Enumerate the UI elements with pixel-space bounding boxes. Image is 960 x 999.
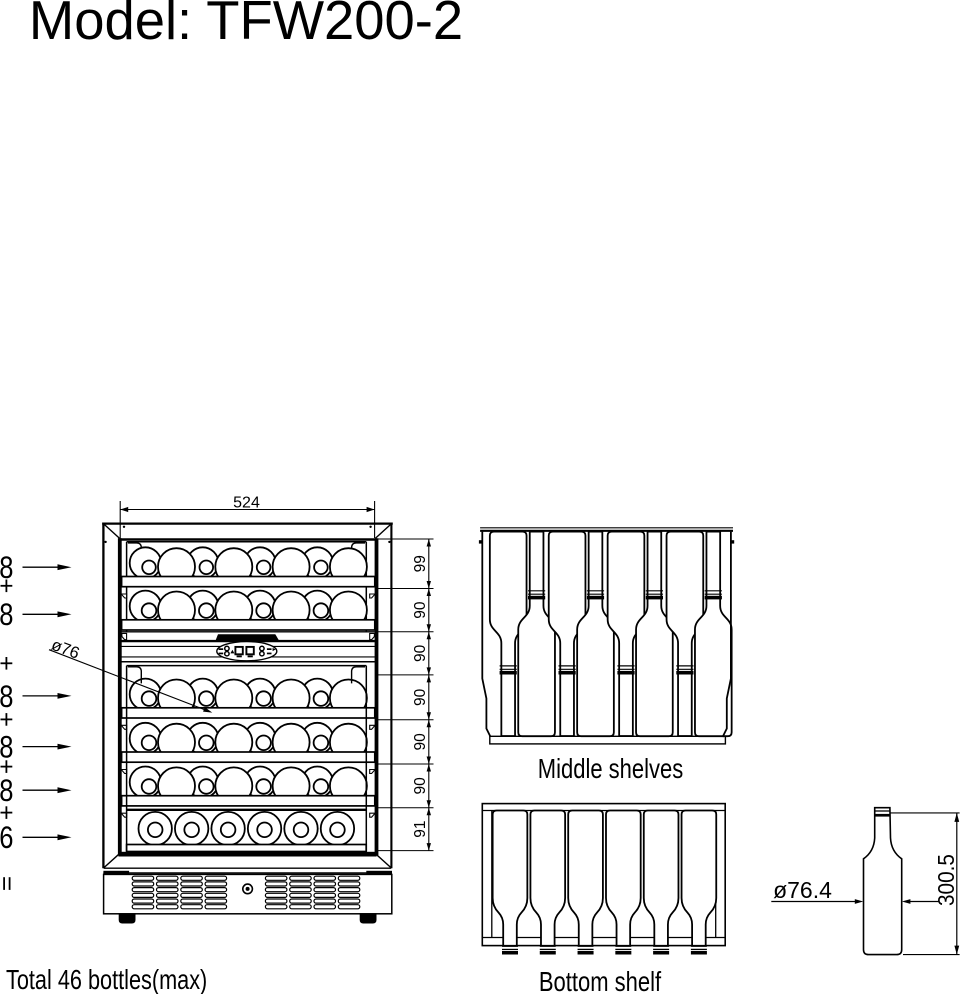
svg-text:ø76.4: ø76.4: [773, 877, 832, 903]
svg-text:Middle shelves: Middle shelves: [538, 753, 683, 784]
svg-text:90: 90: [412, 777, 429, 795]
svg-text:300.5: 300.5: [933, 854, 959, 906]
svg-text:90: 90: [412, 688, 429, 706]
svg-text:90: 90: [412, 733, 429, 751]
svg-text:8: 8: [0, 729, 13, 765]
svg-text:8: 8: [0, 772, 13, 808]
svg-text:99: 99: [412, 555, 429, 572]
svg-text:90: 90: [412, 601, 429, 619]
svg-text:Bottom shelf: Bottom shelf: [539, 967, 661, 994]
svg-text:6: 6: [0, 819, 13, 855]
svg-text:8: 8: [0, 678, 13, 714]
svg-text:524: 524: [233, 495, 260, 512]
svg-text:Model: TFW200-2: Model: TFW200-2: [29, 0, 463, 51]
svg-text:Total 46 bottles(max): Total 46 bottles(max): [6, 964, 207, 994]
svg-text:91: 91: [412, 821, 429, 838]
svg-text:90: 90: [412, 644, 429, 662]
svg-text:8: 8: [0, 596, 13, 632]
